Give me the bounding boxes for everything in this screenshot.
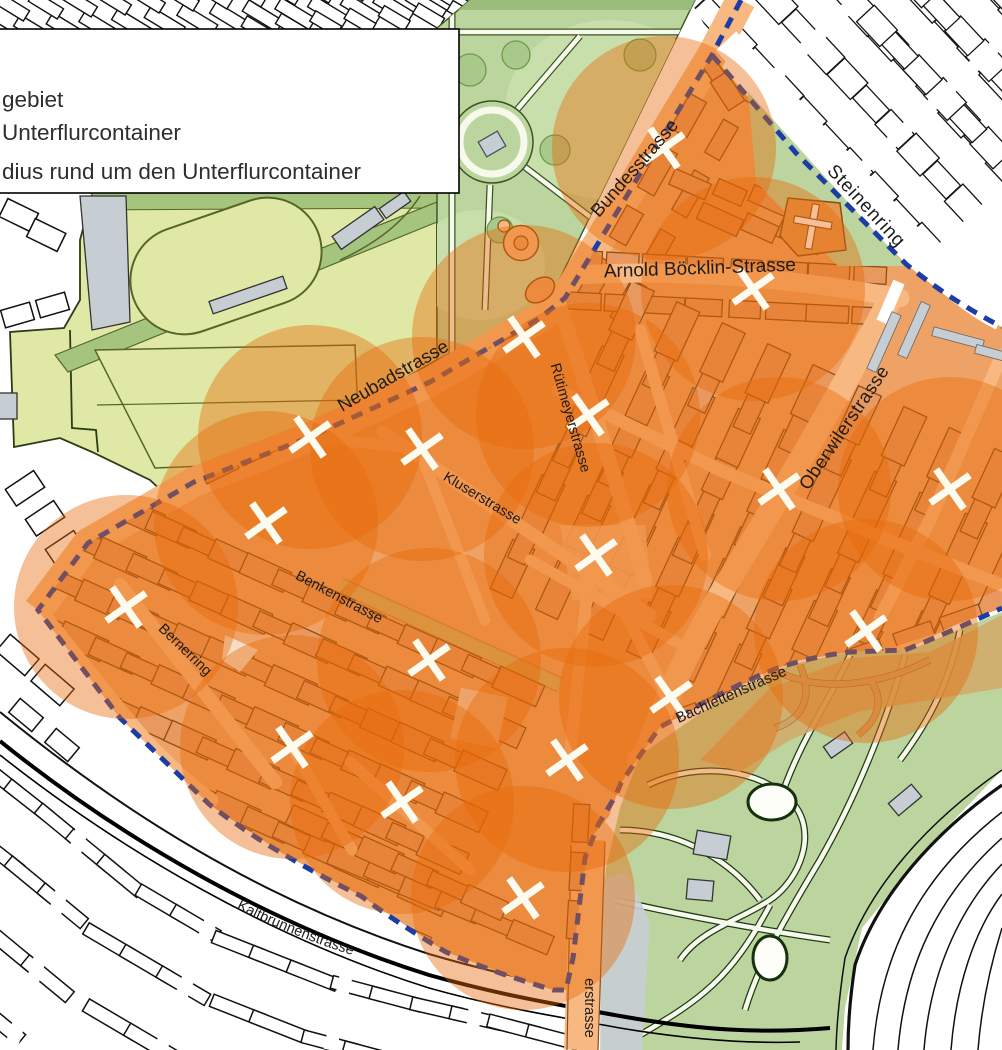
svg-text:gebiet: gebiet xyxy=(2,87,64,112)
svg-text:erstrasse: erstrasse xyxy=(581,978,597,1038)
svg-text:Unterflurcontainer: Unterflurcontainer xyxy=(2,120,181,145)
svg-text:dius rund um den Unterflurcont: dius rund um den Unterflurcontainer xyxy=(2,159,361,184)
